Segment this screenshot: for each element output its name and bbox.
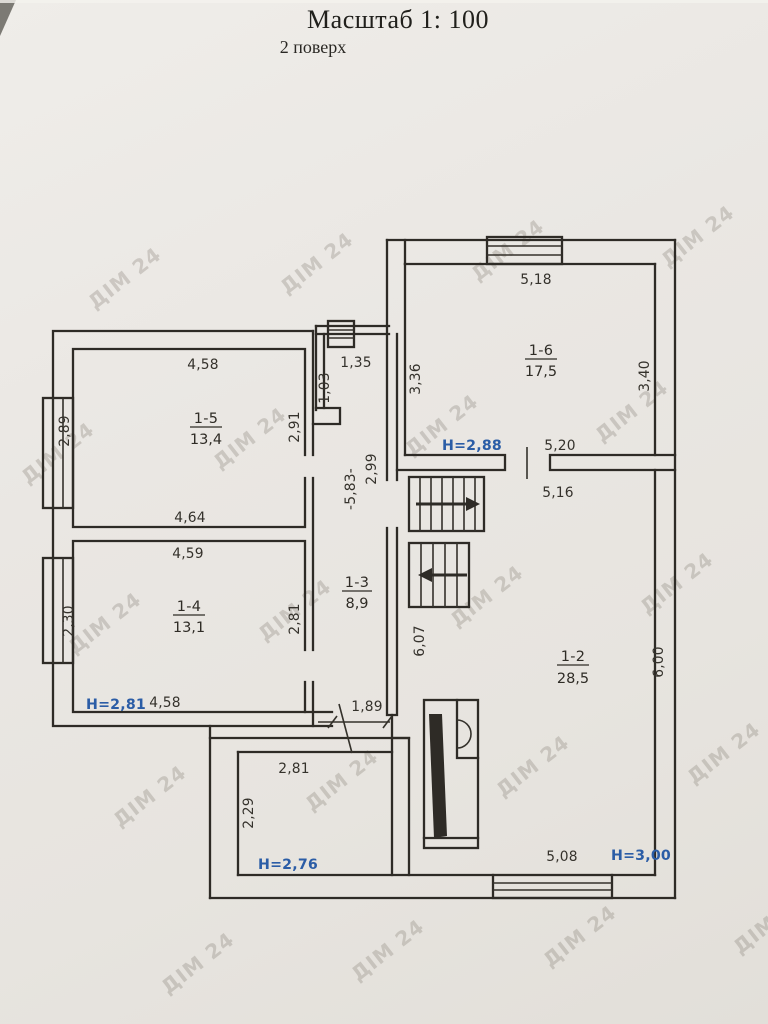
room-1-3-id: 1-3 [345, 575, 370, 591]
staircase-lower-flight [409, 543, 469, 607]
dim-label: 2,30 [61, 605, 77, 637]
ceiling-height-label: H=2,88 [442, 438, 502, 454]
room-1-6-id: 1-6 [529, 343, 554, 359]
ceiling-height-label: H=2,81 [86, 697, 146, 713]
dim-label: 3,40 [637, 360, 653, 392]
room-1-4-area: 13,1 [173, 620, 205, 636]
dim-label: -5,83- [343, 468, 359, 510]
chimney-flue-fill [429, 714, 447, 838]
dim-label: 5,20 [544, 438, 576, 454]
dim-label: 4,58 [187, 357, 219, 373]
dim-label: 3,36 [408, 363, 424, 395]
room-1-3-area: 8,9 [345, 596, 368, 612]
window-room-1-2-bottom [493, 875, 612, 898]
scanned-floor-plan-page: ДІМ 24 ДІМ 24 ДІМ 24 ДІМ 24 ДІМ 24 ДІМ 2… [0, 0, 768, 1024]
watermark-text: ДІМ 24 [346, 914, 429, 986]
room-1-4-id: 1-4 [177, 599, 202, 615]
chimney-shaft [424, 700, 478, 848]
page-subtitle: 2 поверх [280, 37, 347, 57]
watermark-text: ДІМ 24 [300, 744, 383, 816]
room-1-5-id: 1-5 [194, 411, 219, 427]
dim-label: 2,29 [241, 797, 257, 829]
floor-plan-drawing: ДІМ 24 ДІМ 24 ДІМ 24 ДІМ 24 ДІМ 24 ДІМ 2… [0, 0, 768, 1024]
watermark-text: ДІМ 24 [491, 730, 574, 802]
dim-label: 6,07 [412, 625, 428, 657]
dim-label: 2,99 [364, 453, 380, 485]
dim-label: 5,18 [520, 272, 552, 288]
southwest-room-labels: 2,81 2,29 H=2,76 [241, 761, 318, 873]
watermark-text: ДІМ 24 [108, 760, 191, 832]
stairs-down-arrow-icon [418, 568, 432, 582]
header: Масштаб 1: 100 2 поверх [280, 5, 489, 57]
dim-label: 4,58 [149, 695, 181, 711]
watermark-text: ДІМ 24 [156, 927, 239, 999]
dim-label: 1,03 [317, 372, 333, 404]
room-1-6-labels: 1-6 17,5 5,18 3,36 3,40 5,20 5,16 H=2,88 [408, 272, 653, 501]
dim-label: 2,89 [57, 415, 73, 447]
room-1-5-area: 13,4 [190, 432, 222, 448]
room-1-2-id: 1-2 [561, 649, 586, 665]
dim-label: 1,35 [340, 355, 372, 371]
dim-label: 5,16 [542, 485, 574, 501]
room-1-2-area: 28,5 [557, 671, 589, 687]
watermark-text: ДІМ 24 [538, 900, 621, 972]
dim-label: 4,59 [172, 546, 204, 562]
watermark-text: ДІМ 24 [656, 200, 739, 272]
stairs-up-arrow-icon [466, 497, 480, 511]
room-1-6-area: 17,5 [525, 364, 557, 380]
dim-label: 2,81 [287, 603, 303, 635]
page-title: Масштаб 1: 100 [307, 5, 489, 34]
ceiling-height-label: H=2,76 [258, 857, 318, 873]
left-block-walls [53, 331, 332, 726]
watermark-text: ДІМ 24 [635, 547, 718, 619]
dim-label: 4,64 [174, 510, 206, 526]
dim-label: 2,81 [278, 761, 310, 777]
room-1-5-labels: 1-5 13,4 4,58 4,64 2,89 2,91 [57, 357, 303, 526]
dim-label: 1,89 [351, 699, 383, 715]
staircase-upper-flight [409, 477, 484, 531]
watermark-text: ДІМ 24 [682, 717, 765, 789]
dim-label: 2,91 [287, 411, 303, 443]
watermark-text: ДІМ 24 [728, 887, 768, 959]
ceiling-height-label: H=3,00 [611, 848, 671, 864]
dim-label: 5,08 [546, 849, 578, 865]
dim-label: 6,00 [651, 646, 667, 678]
watermark-text: ДІМ 24 [590, 375, 673, 447]
watermark-text: ДІМ 24 [83, 242, 166, 314]
watermark-text: ДІМ 24 [275, 227, 358, 299]
